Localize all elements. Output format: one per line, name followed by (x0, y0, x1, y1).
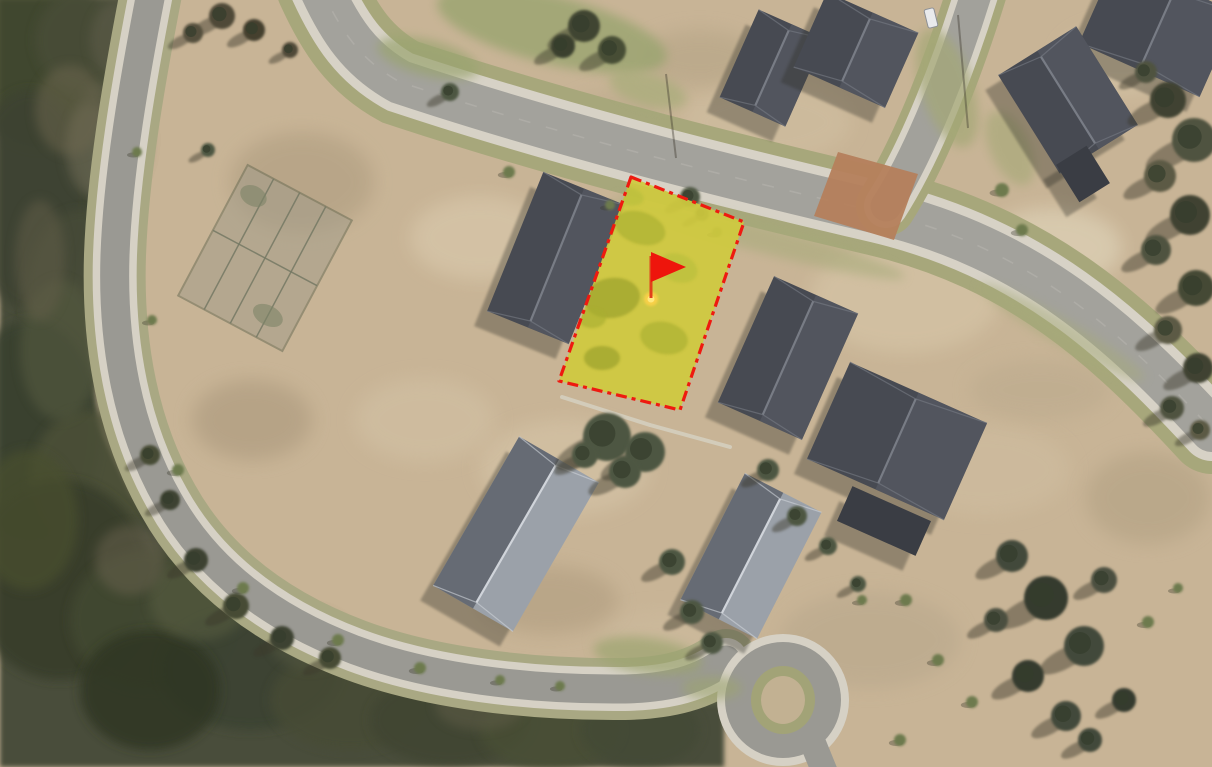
tree-canopy-core (187, 552, 200, 565)
bush (237, 582, 249, 594)
tree-canopy-core (1155, 87, 1175, 107)
bush (900, 594, 912, 606)
bush (172, 464, 184, 476)
tree-canopy-core (1158, 320, 1173, 335)
bush (1142, 616, 1154, 628)
tree-canopy-core (226, 597, 240, 611)
tree-canopy-core (760, 462, 772, 474)
tree-canopy-core (1163, 400, 1176, 413)
tree-canopy-core (704, 635, 716, 647)
dirt-patch (355, 378, 495, 462)
tree-canopy-core (987, 612, 1000, 625)
tree-canopy-core (1030, 583, 1054, 607)
grass-verge (682, 676, 742, 700)
tree-canopy-core (790, 509, 801, 520)
lot-grass-mottle (584, 346, 620, 370)
bush (147, 315, 157, 325)
aerial-map-canvas (0, 0, 1212, 767)
forest-canopy-blob (80, 630, 220, 750)
tree-canopy-core (589, 420, 615, 446)
tree-canopy-core (186, 26, 197, 37)
tree-canopy-core (613, 461, 631, 479)
tree-canopy-core (852, 578, 861, 587)
tree-canopy-core (554, 38, 567, 51)
tree-canopy-core (662, 553, 676, 567)
bush (495, 675, 505, 685)
bush (132, 147, 142, 157)
tree-canopy-core (1000, 545, 1018, 563)
aerial-map-view[interactable] (0, 0, 1212, 767)
tree-canopy-core (821, 540, 831, 550)
bush (503, 166, 515, 178)
tree-canopy-core (212, 7, 226, 21)
tree-canopy-core (246, 22, 258, 34)
tree-canopy-core (1187, 358, 1204, 375)
bush (332, 634, 344, 646)
tree-canopy-core (1183, 275, 1203, 295)
bush (414, 662, 426, 674)
tree-canopy-core (273, 630, 286, 643)
tree-canopy-core (1094, 571, 1108, 585)
bush (894, 734, 906, 746)
tree-canopy-core (602, 40, 617, 55)
bush (932, 654, 944, 666)
tree-canopy-core (284, 44, 293, 53)
tree-canopy-core (575, 446, 589, 460)
tree-canopy-core (1016, 665, 1034, 683)
bush (1016, 224, 1028, 236)
tree-canopy-core (1138, 64, 1150, 76)
bush (605, 200, 615, 210)
tree-canopy-core (572, 15, 590, 33)
bush (995, 183, 1009, 197)
bush (966, 696, 978, 708)
cul-de-sac-island-center (761, 676, 805, 724)
bush (555, 681, 565, 691)
tree-canopy-core (322, 650, 334, 662)
tree-canopy-core (1193, 423, 1204, 434)
tree-canopy-core (1081, 732, 1094, 745)
tree-canopy-core (1055, 706, 1072, 723)
bush (857, 595, 867, 605)
tree-canopy-core (203, 145, 211, 153)
tree-canopy-core (683, 604, 696, 617)
tree-canopy-core (1175, 201, 1197, 223)
tree-canopy-core (1069, 632, 1091, 654)
tree-canopy-core (163, 493, 174, 504)
tree-canopy-core (1115, 692, 1128, 705)
tree-canopy-core (1178, 125, 1202, 149)
tree-canopy-core (1145, 240, 1162, 257)
dirt-patch (192, 380, 312, 460)
bush (1173, 583, 1183, 593)
tree-canopy-core (630, 438, 652, 460)
tree-canopy-core (443, 86, 453, 96)
forest-canopy-blob (15, 200, 65, 320)
tree-canopy-core (1148, 165, 1166, 183)
tree-canopy-core (143, 448, 154, 459)
